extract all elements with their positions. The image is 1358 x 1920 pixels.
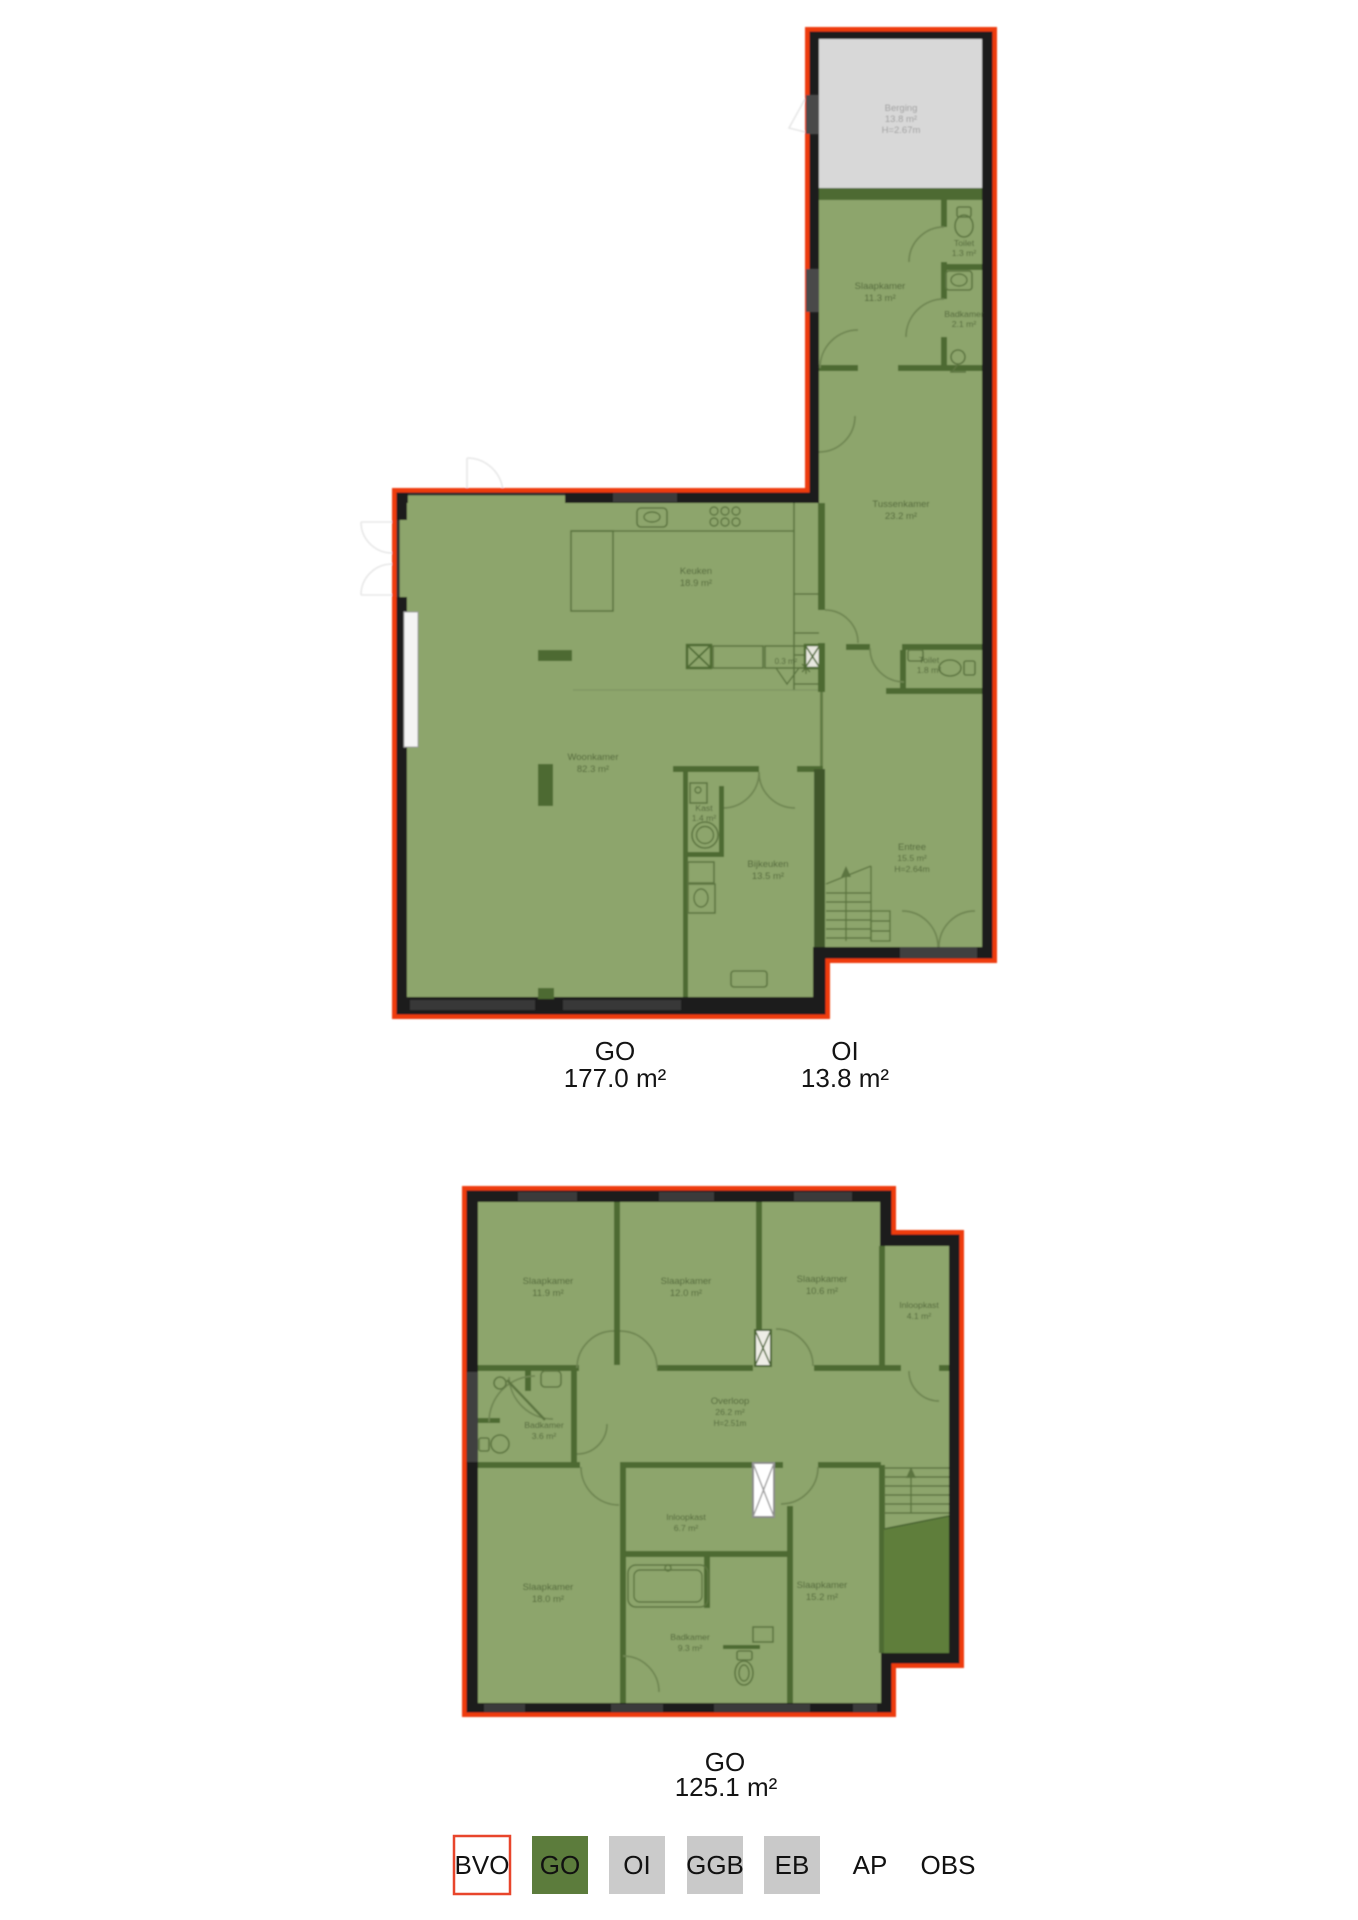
svg-text:82.3 m²: 82.3 m²: [577, 764, 609, 775]
svg-text:Badkamer: Badkamer: [524, 1420, 564, 1430]
svg-text:12.0 m²: 12.0 m²: [670, 1288, 702, 1299]
svg-text:1.4 m²: 1.4 m²: [692, 813, 717, 823]
svg-text:H=2.51m: H=2.51m: [714, 1419, 747, 1428]
svg-text:BVO: BVO: [455, 1850, 510, 1880]
svg-text:AP: AP: [853, 1850, 888, 1880]
svg-text:GO: GO: [540, 1850, 580, 1880]
svg-text:Slaapkamer: Slaapkamer: [661, 1276, 712, 1287]
svg-text:Slaapkamer: Slaapkamer: [797, 1580, 848, 1591]
svg-text:2.1 m²: 2.1 m²: [952, 319, 977, 329]
svg-text:177.0 m²: 177.0 m²: [564, 1063, 667, 1093]
svg-text:4.1 m²: 4.1 m²: [907, 1311, 932, 1321]
svg-text:13.8 m²: 13.8 m²: [801, 1063, 889, 1093]
svg-text:6.7 m²: 6.7 m²: [674, 1523, 699, 1533]
svg-text:Toilet: Toilet: [954, 238, 975, 248]
svg-text:Inloopkast: Inloopkast: [899, 1300, 939, 1310]
svg-text:Badkamer: Badkamer: [944, 309, 984, 319]
svg-text:H=2.67m: H=2.67m: [882, 125, 921, 136]
svg-text:18.0 m²: 18.0 m²: [532, 1594, 564, 1605]
svg-text:11.9 m²: 11.9 m²: [532, 1288, 564, 1299]
svg-text:Slaapkamer: Slaapkamer: [855, 281, 906, 292]
svg-text:1.8 m²: 1.8 m²: [917, 665, 942, 675]
svg-text:1.3 m²: 1.3 m²: [952, 248, 977, 258]
svg-text:Woonkamer: Woonkamer: [567, 752, 618, 763]
svg-text:Kast: Kast: [695, 803, 713, 813]
svg-text:H=2.64m: H=2.64m: [894, 864, 930, 874]
svg-text:9.3 m²: 9.3 m²: [678, 1643, 703, 1653]
svg-text:125.1 m²: 125.1 m²: [675, 1772, 778, 1802]
svg-text:OI: OI: [623, 1850, 650, 1880]
svg-text:OI: OI: [831, 1036, 858, 1066]
svg-text:15.2 m²: 15.2 m²: [806, 1592, 838, 1603]
svg-text:OBS: OBS: [921, 1850, 976, 1880]
svg-text:Slaapkamer: Slaapkamer: [523, 1276, 574, 1287]
svg-text:18.9 m²: 18.9 m²: [680, 578, 712, 589]
svg-text:10.6 m²: 10.6 m²: [806, 1286, 838, 1297]
svg-text:26.2 m²: 26.2 m²: [715, 1407, 745, 1417]
svg-text:GGB: GGB: [686, 1850, 744, 1880]
svg-text:13.5 m²: 13.5 m²: [752, 871, 784, 882]
svg-text:Entree: Entree: [898, 842, 926, 853]
svg-text:GO: GO: [595, 1036, 635, 1066]
svg-text:Berging: Berging: [885, 103, 918, 114]
svg-text:Inloopkast: Inloopkast: [666, 1512, 706, 1522]
svg-text:23.2 m²: 23.2 m²: [885, 511, 917, 522]
svg-text:Toilet: Toilet: [919, 655, 940, 665]
svg-text:Bijkeuken: Bijkeuken: [747, 859, 788, 870]
svg-text:Tussenkamer: Tussenkamer: [872, 499, 929, 510]
svg-text:11.3 m²: 11.3 m²: [864, 293, 896, 304]
svg-text:15.5 m²: 15.5 m²: [897, 853, 927, 863]
svg-text:Badkamer: Badkamer: [670, 1632, 710, 1642]
svg-text:13.8 m²: 13.8 m²: [885, 114, 917, 125]
svg-text:3.6 m²: 3.6 m²: [532, 1431, 557, 1441]
svg-text:Keuken: Keuken: [680, 566, 712, 577]
svg-text:Slaapkamer: Slaapkamer: [523, 1582, 574, 1593]
svg-text:EB: EB: [775, 1850, 810, 1880]
svg-text:0.3 m²: 0.3 m²: [775, 657, 798, 666]
svg-text:Overloop: Overloop: [711, 1396, 750, 1407]
svg-text:Slaapkamer: Slaapkamer: [797, 1274, 848, 1285]
